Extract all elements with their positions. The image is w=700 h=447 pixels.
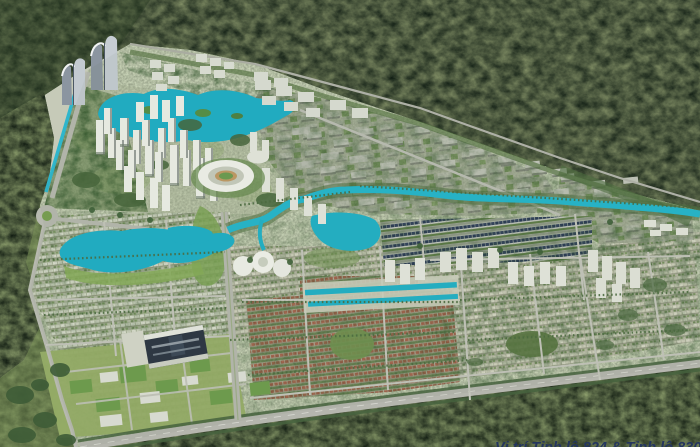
svg-text:Vị trí Tỉnh lộ 824 & Tỉnh lộ 8: Vị trí Tỉnh lộ 824 & Tỉnh lộ 830 bbox=[495, 440, 700, 447]
